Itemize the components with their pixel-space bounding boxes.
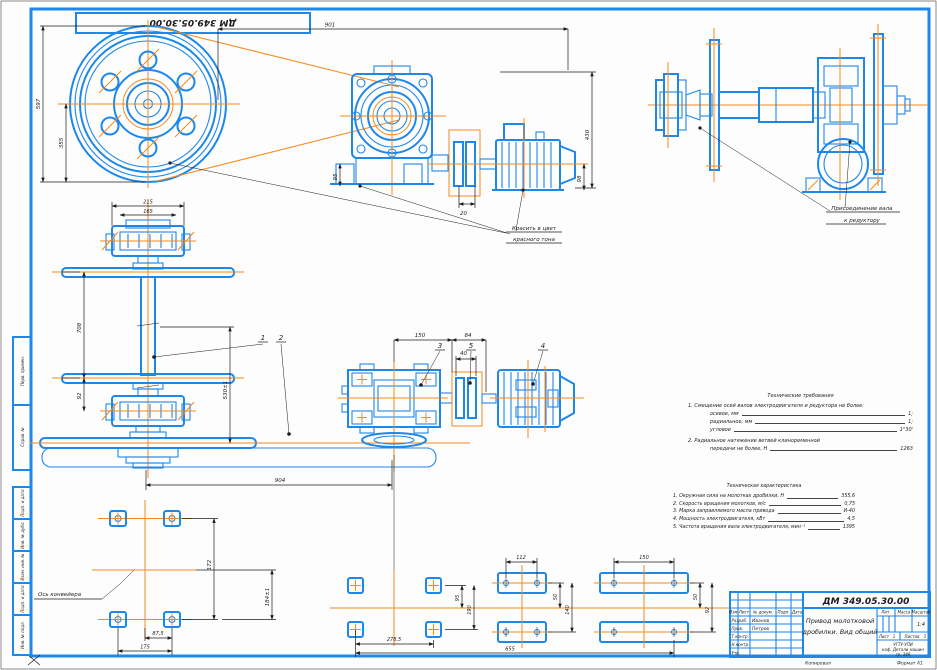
assembly-drawing: Перв. примен. Справ. № Подп. и дата Инв.… [0, 0, 937, 670]
dim-motor-holes: 112 [516, 555, 526, 561]
foundation-plan-left: Ось конвейера 172 184±1 87,5 175 [34, 500, 276, 655]
tech-char-item: 3. Марка заправляемого масла приводаИ-40 [673, 509, 855, 516]
leader-line [808, 528, 839, 530]
tb-scale-value: 1:4 [917, 622, 925, 628]
tech-char-title: Техническая характеристика [673, 484, 855, 491]
copied-label: Копировал [805, 661, 831, 667]
motor-pads [594, 565, 694, 648]
dim-plate1-half: 87,5 [152, 631, 163, 637]
dim-axes-offset: 530±1 [223, 381, 229, 400]
item-label: осевое, мм [710, 411, 739, 418]
item-label: радиальное, мм [710, 419, 752, 426]
item-value: 1°30' [900, 427, 913, 434]
dim-plate2-half: 95 [455, 595, 461, 601]
dim-pulley-pcd: 355 [59, 137, 65, 148]
leader-line [787, 497, 838, 499]
dim-tv-b: 84 [465, 333, 472, 339]
margin-label: Справ. № [20, 427, 25, 446]
leader-line [755, 422, 905, 424]
item-value: 0,75 [844, 502, 855, 509]
dim-disc-span: 708 [77, 322, 83, 333]
tech-char-item: 2. Скорость вращения молотков, м/с0,75 [673, 502, 855, 509]
dim-plate2-total: 655 [505, 647, 515, 653]
coupling-bracket-pads [492, 565, 552, 648]
tb-scale-label: Масштаб [911, 610, 931, 615]
tb-name-prov: Петров [752, 626, 769, 632]
motor-fins [502, 142, 551, 188]
tb-title-line2: дробилки. Вид общий [801, 628, 877, 636]
tb-designation: ДМ 349.05.30.00 [822, 597, 910, 607]
leader-line [769, 504, 841, 506]
item-value: 4,5 [847, 517, 855, 524]
shaft-assembly-view: Присоединение вала к редуктору [648, 24, 928, 224]
dim-plate3-holes: 150 [639, 555, 649, 561]
dim-center-distance: 904 [275, 478, 286, 484]
balloon-4: 4 [541, 342, 545, 350]
technical-characteristics: Техническая характеристика 1. Окружная с… [673, 484, 855, 533]
item-label: 4. Мощность электродвигателя, кВт [673, 517, 765, 524]
item-value: 1395 [843, 525, 855, 532]
drive-top-view: 150 84 40 3 5 4 [338, 333, 584, 570]
dim-plate3-rows: 92 [705, 607, 711, 613]
item-label: 5. Частота вращения вала электродвигател… [673, 525, 805, 532]
item-value: 1263 [900, 446, 913, 453]
tech-req-p2: 2. Радиальное натяжение ветвей клинореме… [688, 438, 913, 445]
note-paint-line2: красного тона [513, 237, 555, 243]
tb-org-line3: гр. 349 [896, 652, 911, 657]
tech-req-item: угловое1°30' [710, 427, 913, 434]
tb-hdr-izm: Изм. [729, 610, 738, 615]
balloon-1: 1 [261, 334, 265, 342]
tb-title-line1: Привод молотковой [806, 617, 874, 625]
dim-tv-a: 150 [415, 333, 426, 339]
balloon-2: 2 [279, 334, 284, 342]
dim-motor-rows: 140 [565, 605, 571, 615]
dim-plate1-rows: 172 [207, 559, 213, 570]
format-label: Формат А1 [897, 661, 923, 667]
tb-sheets-value: 1 [924, 634, 927, 639]
dim-bearing-width: 215 [143, 200, 153, 206]
tb-name-razrab: Иванов [752, 618, 769, 624]
tb-row-prov: Пров. [732, 626, 744, 631]
drawing-sheet: Перв. примен. Справ. № Подп. и дата Инв.… [0, 0, 937, 670]
note-paint-line1: Красить в цвет [512, 226, 557, 232]
dim-coupling-gap: 20 [460, 211, 467, 217]
dim-motor-foot: 98 [577, 175, 583, 182]
margin-label: Взам. инв. № [20, 553, 25, 580]
balloon-5: 5 [469, 342, 474, 350]
tb-sheet-value: 1 [893, 634, 896, 639]
leader-line [768, 520, 844, 522]
tb-hdr-podp: Подп. [777, 610, 789, 615]
tb-lit-label: Лит. [880, 610, 890, 615]
tb-hdr-list: Лист [738, 610, 750, 615]
item-label: передачи не более, Н [710, 446, 767, 453]
leader-line [770, 449, 897, 451]
item-value: И-40 [844, 509, 855, 516]
dim-plate3-half: 50 [693, 594, 699, 600]
leader-line [778, 512, 841, 514]
tech-req-item: осевое, мм1; [710, 411, 913, 418]
dim-plate2-cols: 278,5 [387, 637, 401, 643]
dim-plate1-cols: 175 [140, 645, 150, 651]
tb-sheets-label: Листов [904, 634, 921, 639]
leader-line [742, 414, 905, 416]
margin-label: Перв. примен. [20, 356, 25, 386]
item-label: угловое [710, 427, 731, 434]
margin-label: Подп. и дата [20, 585, 25, 613]
tb-row-razrab: Разраб. [732, 618, 748, 623]
dim-motor-half: 50 [553, 594, 559, 600]
note-shaft-line1: Присоединение вала [831, 206, 893, 212]
dim-pulley-od: 597 [36, 98, 42, 109]
dim-bearing-inner: 165 [143, 209, 153, 215]
dim-plate2-rows: 190 [467, 605, 473, 615]
tb-row-utv: Утв. [732, 651, 740, 656]
tb-mass-label: Масса [898, 610, 911, 615]
item-value: 1; [908, 419, 913, 426]
tech-req-item: радиальное, мм1; [710, 419, 913, 426]
margin-label: Инв. № подл. [20, 621, 25, 649]
margin-label: Подп. и дата [20, 489, 25, 517]
stamp-designation: ДМ 349.05.30.00 [150, 17, 238, 27]
gearbox-motor-front-view: 901 430 95 98 20 Красить в цвет красного… [168, 23, 596, 244]
note-shaft-line2: к редуктору [844, 218, 880, 224]
dim-plate1-axis: 184±1 [265, 588, 271, 607]
technical-requirements: Технические требования 1. Смещение осей … [688, 393, 913, 454]
tb-row-tkontr: Т.контр. [732, 634, 749, 639]
tech-char-item: 5. Частота вращения вала электродвигател… [673, 525, 855, 532]
item-label: 3. Марка заправляемого масла привода [673, 509, 775, 516]
foundation-plan-center: 95 190 112 50 140 150 50 92 278,5 65 [330, 555, 736, 657]
dim-disc-to-bearing: 92 [77, 392, 83, 399]
item-value: 355,6 [841, 494, 855, 501]
item-label: 1. Окружная сила на молотках дробилки, Н [673, 494, 784, 501]
tech-req-title: Технические требования [688, 393, 913, 400]
dim-tv-c: 40 [460, 351, 467, 357]
tb-sheet-label: Лист [878, 634, 890, 639]
item-label: 2. Скорость вращения молотков, м/с [673, 502, 766, 509]
tech-char-item: 4. Мощность электродвигателя, кВт4,5 [673, 517, 855, 524]
tb-hdr-dokum: № докум. [752, 610, 773, 615]
pulley-front-view: 597 355 [36, 20, 399, 188]
item-value: 1; [908, 411, 913, 418]
tb-hdr-data: Дата [791, 610, 803, 615]
note-axis-label: Ось конвейера [38, 592, 82, 598]
dim-overall-width: 901 [325, 23, 336, 29]
tech-req-item: передачи не более, Н1263 [710, 446, 913, 453]
tech-req-p1: 1. Смещение осей валов электродвигателя … [688, 403, 913, 410]
margin-label: Инв. № дубл. [20, 521, 25, 548]
balloon-3: 3 [438, 342, 442, 350]
dim-overall-height: 430 [585, 129, 591, 140]
leader-line [734, 430, 897, 432]
tb-row-nkontr: Н.контр. [732, 642, 750, 647]
dim-gearbox-foot: 95 [333, 173, 339, 180]
tech-char-item: 1. Окружная сила на молотках дробилки, Н… [673, 494, 855, 501]
